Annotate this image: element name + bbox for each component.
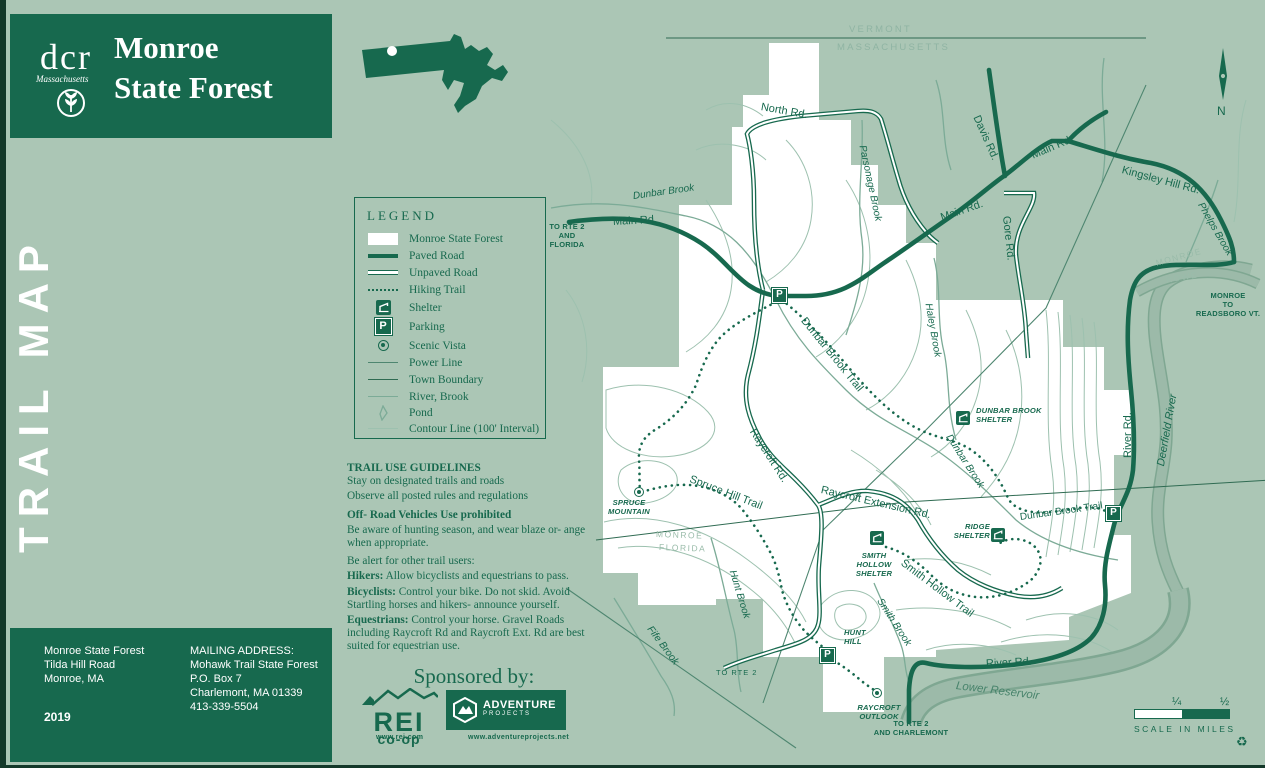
legend-row-paved: Paved Road xyxy=(365,247,464,264)
main-road-north-spur xyxy=(1068,112,1106,141)
guidelines-hikers: Hikers: Allow bicyclists and equestrians… xyxy=(347,570,587,583)
town-boundary-line xyxy=(368,379,398,380)
legend-label: Hiking Trail xyxy=(409,284,466,296)
dcr-logo-subtext: Massachusetts xyxy=(36,74,89,84)
legend-label: Shelter xyxy=(409,302,442,314)
mailing-address: MAILING ADDRESS: Mohawk Trail State Fore… xyxy=(190,644,318,714)
shelter-icon xyxy=(376,300,391,315)
legend-title: LEGEND xyxy=(367,208,437,224)
direction-label-readsboro-1: MONROE xyxy=(1211,291,1246,300)
park-road: Tilda Hill Road xyxy=(44,658,144,672)
dcr-leaf-icon xyxy=(56,88,86,118)
park-address: Monroe State Forest Tilda Hill Road Monr… xyxy=(44,644,144,686)
vista-label-spruce-mountain: SPRUCE MOUNTAIN xyxy=(598,498,660,516)
forest-location-dot xyxy=(387,46,397,56)
legend-row-power-line: Power Line xyxy=(365,354,462,371)
guidelines-offroad: Off- Road Vehicles Use prohibited xyxy=(347,509,587,522)
guidelines-title: TRAIL USE GUIDELINES xyxy=(347,462,587,475)
parking-icon-river-road: P xyxy=(1106,506,1121,521)
legend-row-forest: Monroe State Forest xyxy=(365,230,503,247)
legend-row-shelter: Shelter xyxy=(365,299,442,316)
kingsley-hill-road xyxy=(1068,141,1234,262)
scenic-vista-icon-spruce-mountain xyxy=(634,487,644,497)
power-line xyxy=(368,362,398,363)
rei-url: www.rei.com xyxy=(376,734,423,741)
mailing-label: MAILING ADDRESS: xyxy=(190,644,318,658)
legend-label: Contour Line (100' Interval) xyxy=(409,423,539,435)
hikers-label: Hikers: xyxy=(347,570,383,582)
shelter-label-dunbar-brook: DUNBAR BROOK SHELTER xyxy=(976,406,1064,424)
direction-label-to-rte2-florida-3: FLORIDA xyxy=(550,240,585,249)
legend-row-town-boundary: Town Boundary xyxy=(365,371,483,388)
trail-map-page: dcr Massachusetts Monroe State Forest TR… xyxy=(0,0,1265,768)
header-banner: dcr Massachusetts Monroe State Forest xyxy=(10,14,332,138)
legend-label: Parking xyxy=(409,321,445,333)
parking-icon-raycroft: P xyxy=(820,648,835,663)
park-name: Monroe State Forest xyxy=(44,644,144,658)
legend-row-river-brook: River, Brook xyxy=(365,388,469,405)
paved-road-line xyxy=(368,254,398,258)
shelter-icon-smith-hollow xyxy=(870,531,884,545)
boundary-label-monroe-florida-2: FLORIDA xyxy=(659,542,707,554)
legend-row-parking: P Parking xyxy=(365,318,445,335)
scale-caption: SCALE IN MILES xyxy=(1134,724,1236,734)
guidelines-equestrians: Equestrians: Control your horse. Gravel … xyxy=(347,614,587,654)
rei-mountains-icon xyxy=(360,688,438,706)
direction-label-to-rte2-florida-2: AND xyxy=(559,231,576,240)
direction-label-to-rte2-sw: TO RTE 2 xyxy=(716,668,757,677)
scale-quarter-mile-label: ¼ xyxy=(1172,696,1181,708)
boundary-label-monroe-florida-1: MONROE xyxy=(656,529,704,541)
direction-label-charlemont-1: TO RTE 2 xyxy=(893,719,928,728)
hikers-text: Allow bicyclists and equestrians to pass… xyxy=(383,570,568,582)
road-label-main-rd-west: Main Rd. xyxy=(613,214,658,228)
hiking-trail-dots xyxy=(368,289,398,291)
legend-label: Paved Road xyxy=(409,250,464,262)
scale-half-mile-label: ½ xyxy=(1220,696,1229,708)
legend-row-contour: Contour Line (100' Interval) xyxy=(365,420,539,437)
vertical-title-trail-map: TRAIL MAP xyxy=(10,234,58,554)
legend-box: LEGEND Monroe State Forest Paved Road Un… xyxy=(354,197,546,439)
state-label-vermont: VERMONT xyxy=(849,24,912,35)
sponsored-by-heading: Sponsored by: xyxy=(374,664,574,689)
guidelines-hunting: Be aware of hunting season, and wear bla… xyxy=(347,524,587,550)
road-label-river-rd-south: River Rd. xyxy=(986,656,1032,670)
legend-label: Power Line xyxy=(409,357,462,369)
hill-label-hunt-hill: HUNT HILL xyxy=(844,628,878,646)
massachusetts-inset-map xyxy=(354,20,514,120)
guidelines-bicyclists: Bicyclists: Control your bike. Do not sk… xyxy=(347,586,587,612)
adventure-projects-url: www.adventureprojects.net xyxy=(468,734,569,741)
mailing-line: P.O. Box 7 xyxy=(190,672,318,686)
legend-row-vista: Scenic Vista xyxy=(365,337,466,354)
parking-icon-main-road: P xyxy=(772,288,787,303)
mailing-line: Mohawk Trail State Forest xyxy=(190,658,318,672)
parking-icon: P xyxy=(375,318,392,335)
trail-use-guidelines: TRAIL USE GUIDELINES Stay on designated … xyxy=(347,462,587,656)
compass-rose xyxy=(1219,48,1227,100)
legend-row-hiking-trail: Hiking Trail xyxy=(365,281,466,298)
park-info-box: Monroe State Forest Tilda Hill Road Monr… xyxy=(10,628,332,762)
title-line-1: Monroe xyxy=(114,28,273,68)
shelter-label-smith-hollow: SMITH HOLLOW SHELTER xyxy=(851,551,897,578)
legend-row-unpaved: Unpaved Road xyxy=(365,264,478,281)
rei-name: REI xyxy=(358,711,440,733)
direction-label-to-rte2-florida-1: TO RTE 2 xyxy=(549,222,584,231)
guidelines-line: Observe all posted rules and regulations xyxy=(347,490,587,503)
adventure-projects-icon xyxy=(452,697,478,723)
state-label-massachusetts: MASSACHUSETTS xyxy=(837,42,950,53)
unpaved-road-line xyxy=(368,270,398,275)
contour-line xyxy=(368,428,398,429)
shelter-icon-dunbar-brook xyxy=(956,411,970,425)
legend-label: River, Brook xyxy=(409,391,469,403)
scenic-vista-icon xyxy=(378,340,389,351)
road-label-river-rd-vertical: River Rd. xyxy=(1122,412,1134,458)
pond-shape xyxy=(376,405,390,421)
shelter-icon-ridge xyxy=(991,528,1005,542)
forest-swatch xyxy=(368,233,398,245)
equestrians-label: Equestrians: xyxy=(347,614,409,626)
compass-north-label: N xyxy=(1217,104,1226,118)
mailing-line: 413-339-5504 xyxy=(190,700,318,714)
scenic-vista-icon-raycroft-outlook xyxy=(872,688,882,698)
massachusetts-silhouette xyxy=(362,34,508,113)
direction-label-charlemont-2: AND CHARLEMONT xyxy=(874,728,948,737)
legend-label: Monroe State Forest xyxy=(409,233,503,245)
direction-label-readsboro-2: TO xyxy=(1223,300,1234,309)
adventure-projects-logo: ADVENTURE PROJECTS xyxy=(446,690,566,730)
park-town: Monroe, MA xyxy=(44,672,144,686)
shelter-label-ridge: RIDGE SHELTER xyxy=(948,522,990,540)
recycle-icon: ♻ xyxy=(1236,734,1248,750)
river-brook-line xyxy=(368,396,398,397)
legend-label: Unpaved Road xyxy=(409,267,478,279)
adventure-projects-sub: PROJECTS xyxy=(483,710,556,719)
direction-label-readsboro-3: READSBORO VT. xyxy=(1196,309,1260,318)
mailing-line: Charlemont, MA 01339 xyxy=(190,686,318,700)
legend-label: Pond xyxy=(409,407,433,419)
guidelines-line: Stay on designated trails and roads xyxy=(347,475,587,488)
legend-label: Town Boundary xyxy=(409,374,483,386)
page-title: Monroe State Forest xyxy=(114,28,273,108)
dcr-logo-text: dcr xyxy=(40,36,92,78)
guidelines-alert: Be alert for other trail users: xyxy=(347,555,587,568)
legend-label: Scenic Vista xyxy=(409,340,466,352)
legend-row-pond: Pond xyxy=(365,404,433,421)
adventure-projects-name: ADVENTURE xyxy=(483,701,556,710)
bicyclists-label: Bicyclists: xyxy=(347,586,396,598)
map-year: 2019 xyxy=(44,710,71,724)
scale-bar xyxy=(1134,709,1230,719)
title-line-2: State Forest xyxy=(114,68,273,108)
